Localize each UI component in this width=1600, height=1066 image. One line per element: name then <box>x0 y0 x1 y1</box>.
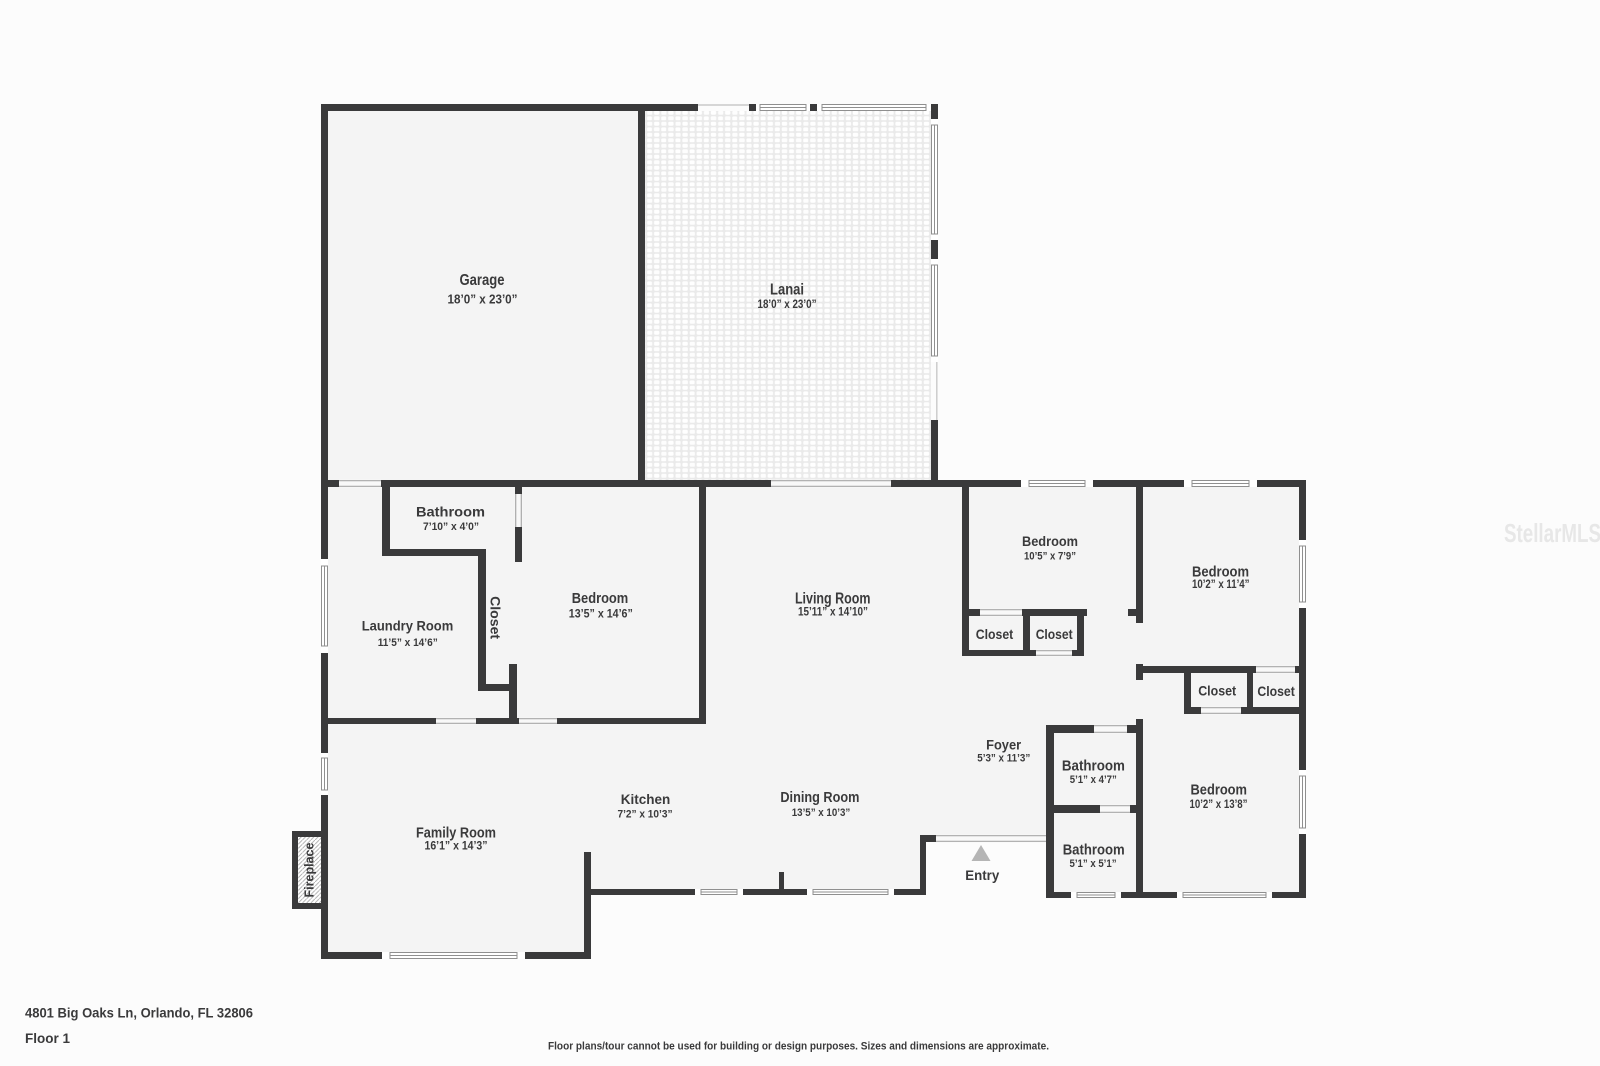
svg-text:10’2” x 11’4”: 10’2” x 11’4” <box>1192 579 1250 591</box>
svg-text:Dining Room: Dining Room <box>780 790 859 806</box>
svg-text:13’5” x 10’3”: 13’5” x 10’3” <box>792 807 851 819</box>
svg-text:Bathroom: Bathroom <box>1063 842 1125 858</box>
svg-text:18’0” x 23’0”: 18’0” x 23’0” <box>448 291 518 306</box>
svg-text:Entry: Entry <box>965 868 999 883</box>
svg-text:Garage: Garage <box>460 272 505 289</box>
svg-text:Closet: Closet <box>1257 684 1295 699</box>
svg-text:7’10” x 4’0”: 7’10” x 4’0” <box>423 521 479 533</box>
svg-text:Kitchen: Kitchen <box>621 791 671 807</box>
svg-text:Floor 1: Floor 1 <box>25 1031 70 1046</box>
svg-text:5’1” x 4’7”: 5’1” x 4’7” <box>1070 774 1117 786</box>
svg-text:Laundry Room: Laundry Room <box>362 617 454 633</box>
svg-text:11’5” x 14’6”: 11’5” x 14’6” <box>378 637 438 649</box>
svg-text:StellarMLS: StellarMLS <box>1504 518 1600 548</box>
svg-text:10’2” x 13’8”: 10’2” x 13’8” <box>1190 799 1248 811</box>
svg-text:5’3” x 11’3”: 5’3” x 11’3” <box>977 753 1030 765</box>
svg-text:Bedroom: Bedroom <box>1022 533 1078 549</box>
svg-text:Bedroom: Bedroom <box>1192 564 1249 581</box>
svg-text:Closet: Closet <box>488 596 504 639</box>
svg-text:15’11” x 14’10”: 15’11” x 14’10” <box>798 606 868 619</box>
svg-text:16’1” x 14’3”: 16’1” x 14’3” <box>425 840 488 853</box>
svg-text:18’0” x 23’0”: 18’0” x 23’0” <box>758 299 817 311</box>
svg-text:13’5” x 14’6”: 13’5” x 14’6” <box>569 608 633 621</box>
svg-text:Bedroom: Bedroom <box>1191 782 1248 799</box>
svg-text:4801 Big Oaks Ln, Orlando, FL: 4801 Big Oaks Ln, Orlando, FL 32806 <box>25 1006 253 1021</box>
svg-text:10’5” x 7’9”: 10’5” x 7’9” <box>1024 551 1076 563</box>
svg-text:Bedroom: Bedroom <box>572 591 629 607</box>
svg-text:Closet: Closet <box>1198 684 1236 699</box>
svg-text:Bathroom: Bathroom <box>416 504 485 520</box>
svg-text:Floor plans/tour cannot be use: Floor plans/tour cannot be used for buil… <box>548 1041 1049 1053</box>
svg-text:Bathroom: Bathroom <box>1062 758 1125 774</box>
svg-text:Lanai: Lanai <box>770 282 804 299</box>
svg-text:7’2” x 10’3”: 7’2” x 10’3” <box>618 809 673 821</box>
svg-text:Fireplace: Fireplace <box>303 843 317 898</box>
svg-text:Foyer: Foyer <box>986 737 1022 753</box>
svg-text:Closet: Closet <box>1036 627 1073 642</box>
svg-text:Closet: Closet <box>976 627 1014 642</box>
svg-text:5’1” x 5’1”: 5’1” x 5’1” <box>1070 858 1117 870</box>
